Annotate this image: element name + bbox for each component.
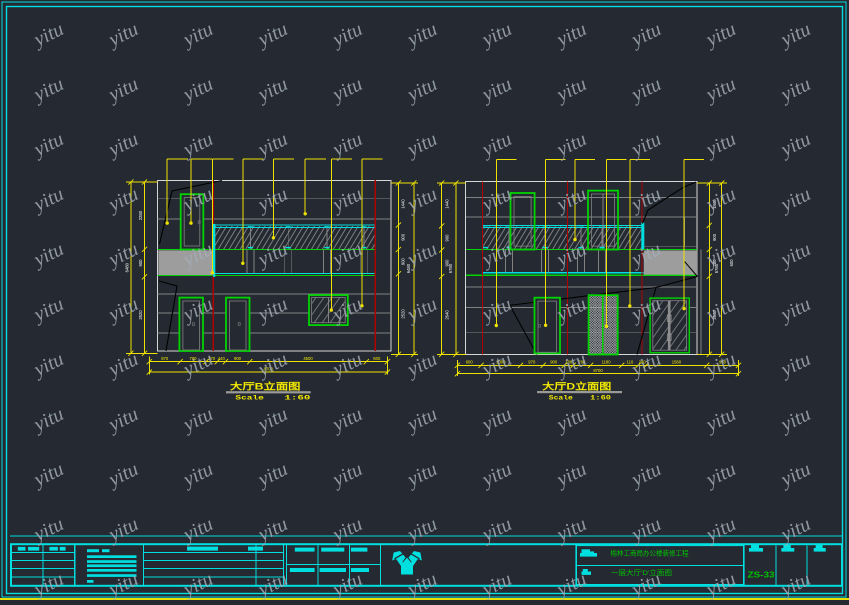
svg-text:1:60: 1:60 [284,394,310,402]
svg-text:大厅B立面图: 大厅B立面图 [230,381,301,392]
svg-text:1580: 1580 [672,360,682,365]
svg-text:900: 900 [138,259,143,267]
svg-text:2640: 2640 [445,310,450,320]
svg-text:4500: 4500 [303,356,313,361]
svg-text:2520: 2520 [401,309,406,319]
svg-text:1:60: 1:60 [590,395,611,403]
svg-text:900: 900 [712,233,717,241]
svg-text:900: 900 [401,233,406,241]
svg-text:2280: 2280 [138,210,143,220]
svg-text:970: 970 [528,360,536,365]
svg-text:440: 440 [218,356,226,361]
svg-text:900: 900 [401,257,406,265]
svg-text:1440: 1440 [445,199,450,209]
svg-text:870: 870 [161,356,169,361]
svg-text:大厅D立面图: 大厅D立面图 [542,380,611,391]
svg-text:Scale: Scale [549,395,573,403]
svg-text:600: 600 [466,360,474,365]
svg-text:榆林工商局办公楼装修工程: 榆林工商局办公楼装修工程 [611,548,689,557]
svg-text:6780: 6780 [448,263,453,273]
svg-text:600: 600 [373,356,381,361]
svg-text:1440: 1440 [401,199,406,209]
svg-text:900: 900 [445,234,450,242]
svg-text:8700: 8700 [593,368,603,373]
svg-text:ZS-33: ZS-33 [748,571,776,580]
svg-text:1180: 1180 [602,360,612,365]
svg-text:900: 900 [234,356,242,361]
svg-text:Scale: Scale [235,394,263,402]
